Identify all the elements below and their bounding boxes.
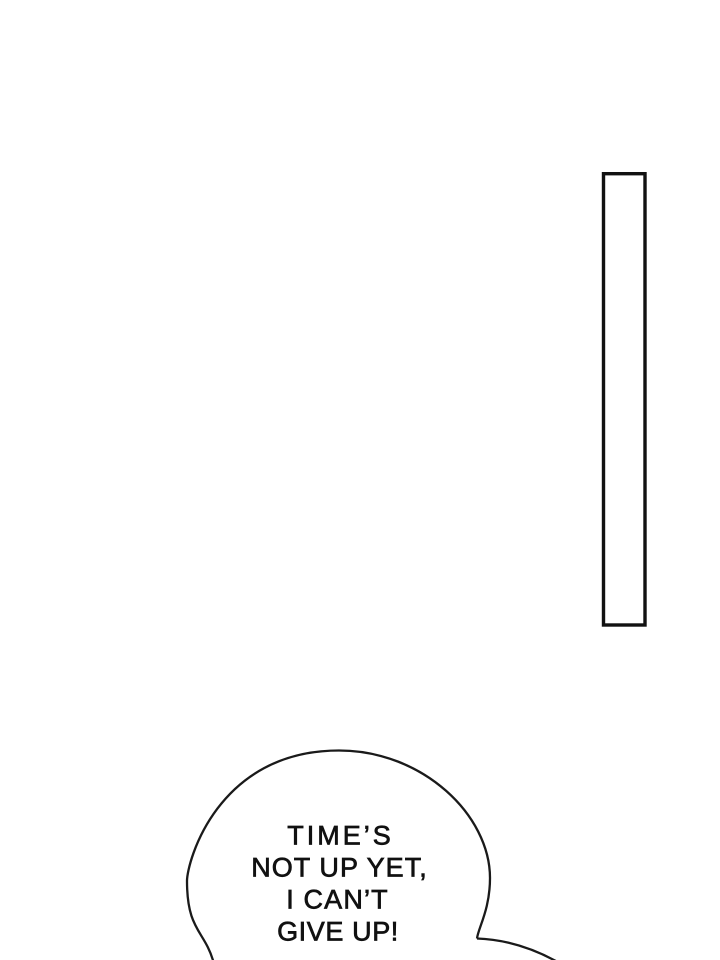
svg-text:TIME’S: TIME’S xyxy=(287,821,394,851)
svg-text:I CAN’T: I CAN’T xyxy=(286,885,389,915)
svg-text:GIVE UP!: GIVE UP! xyxy=(277,917,399,947)
svg-text:NOT UP YET,: NOT UP YET, xyxy=(251,853,428,883)
